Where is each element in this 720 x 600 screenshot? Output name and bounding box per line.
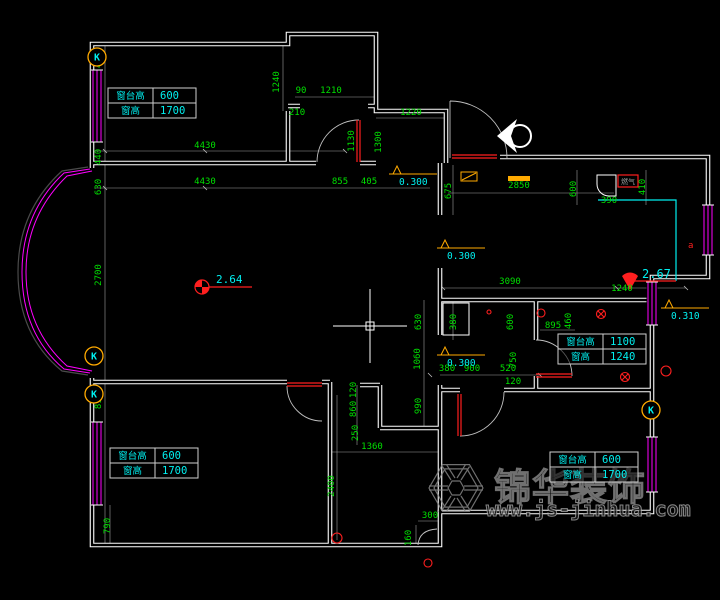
table-label: 窗高 (563, 469, 582, 481)
level-marker: 0.300 (389, 166, 437, 188)
dim-text: 790 (103, 518, 113, 534)
spot-elevation-value: 2.64 (216, 273, 243, 286)
dim-text: 250 (351, 425, 361, 441)
window-table: 窗台高1100窗高1240 (558, 334, 646, 364)
k-marker-label: K (94, 53, 100, 64)
dim-text: 410 (638, 179, 648, 195)
dim-text: 600 (569, 181, 579, 197)
dim-text: 160 (404, 530, 414, 546)
jinhua-logo-icon (429, 465, 483, 512)
cad-canvas[interactable]: 燃气 a 2.64 2.67 (0, 0, 720, 600)
dim-text: 1220 (400, 108, 422, 118)
dim-text: 440 (94, 149, 104, 165)
table-value: 600 (160, 90, 179, 102)
k-marker-label: K (648, 406, 654, 417)
dim-text: 1060 (413, 348, 423, 370)
window-table: 窗台高600窗高1700 (550, 452, 638, 482)
k-marker: K (85, 347, 103, 365)
dim-text: 630 (94, 179, 104, 195)
level-marker: 0.310 (661, 300, 709, 322)
dim-text: 600 (506, 314, 516, 330)
dim-text: 895 (545, 321, 561, 331)
dim-text: 990 (414, 398, 424, 414)
table-value: 1100 (610, 336, 635, 348)
table-label: 窗台高 (558, 454, 587, 466)
north-arrow-icon (497, 119, 531, 153)
dim-text: 1240 (272, 71, 282, 93)
k-marker: K (85, 385, 103, 403)
dim-text: 630 (414, 314, 424, 330)
level-value: 0.300 (447, 251, 476, 262)
gas-meter-label: 燃气 (621, 177, 635, 186)
dim-text: 1360 (361, 442, 383, 452)
window-table: 窗台高600窗高1700 (110, 448, 198, 478)
table-label: 窗高 (123, 465, 142, 477)
dim-text: 460 (564, 313, 574, 329)
pipe-corner (418, 529, 437, 545)
level-marker: 0.300 (437, 240, 485, 262)
window-table: 窗台高600窗高1700 (108, 88, 196, 118)
dim-text: 675 (444, 183, 454, 199)
table-label: 窗台高 (566, 336, 595, 348)
dim-text: 2400 (327, 475, 337, 497)
table-label: 窗台高 (116, 90, 145, 102)
dim-text: 4430 (194, 141, 216, 151)
table-value: 600 (602, 454, 621, 466)
socket-letter: a (688, 241, 693, 251)
k-marker: K (88, 48, 106, 66)
k-marker-label: K (91, 352, 97, 363)
level-value: 0.310 (671, 311, 700, 322)
dim-text: 300 (422, 511, 438, 521)
dim-text: 855 (332, 177, 348, 187)
level-value: 0.300 (399, 177, 428, 188)
bay-window (18, 167, 92, 375)
dim-text: 210 (289, 108, 305, 118)
dim-text: 2850 (508, 181, 530, 191)
dim-text: 1240 (611, 284, 633, 294)
table-label: 窗台高 (118, 450, 147, 462)
dim-text: 3090 (499, 277, 521, 287)
spot-elevation-value: 2.67 (642, 267, 671, 281)
dim-text: 1210 (320, 86, 342, 96)
crosshair-cursor (333, 289, 407, 363)
watermark-url: www.js-jinhua.com (486, 497, 691, 521)
dim-text: 390 (601, 196, 617, 206)
dim-text: 380 (449, 314, 459, 330)
dim-text: 2700 (94, 264, 104, 286)
dim-text: 90 (296, 86, 307, 96)
dim-text: 405 (361, 177, 377, 187)
dim-text: 1300 (374, 131, 384, 153)
table-label: 窗高 (571, 351, 590, 363)
table-value: 600 (162, 450, 181, 462)
dim-text: 4430 (194, 177, 216, 187)
dim-text: 120 (505, 377, 521, 387)
k-marker-label: K (91, 390, 97, 401)
table-value: 1700 (160, 105, 185, 117)
k-marker: K (642, 401, 660, 419)
table-value: 1700 (602, 469, 627, 481)
dim-text: 860 (349, 401, 359, 417)
floor-plan-svg: 燃气 a 2.64 2.67 (0, 0, 720, 600)
dim-text: 120 (349, 382, 359, 398)
dim-text: 1130 (347, 130, 357, 152)
table-label: 窗高 (121, 105, 140, 117)
spot-elevation-264: 2.64 (195, 273, 252, 294)
table-value: 1700 (162, 465, 187, 477)
table-value: 1240 (610, 351, 635, 363)
level-value: 0.300 (447, 358, 476, 369)
wall-core (360, 385, 440, 428)
dim-text: 520 (500, 364, 516, 374)
